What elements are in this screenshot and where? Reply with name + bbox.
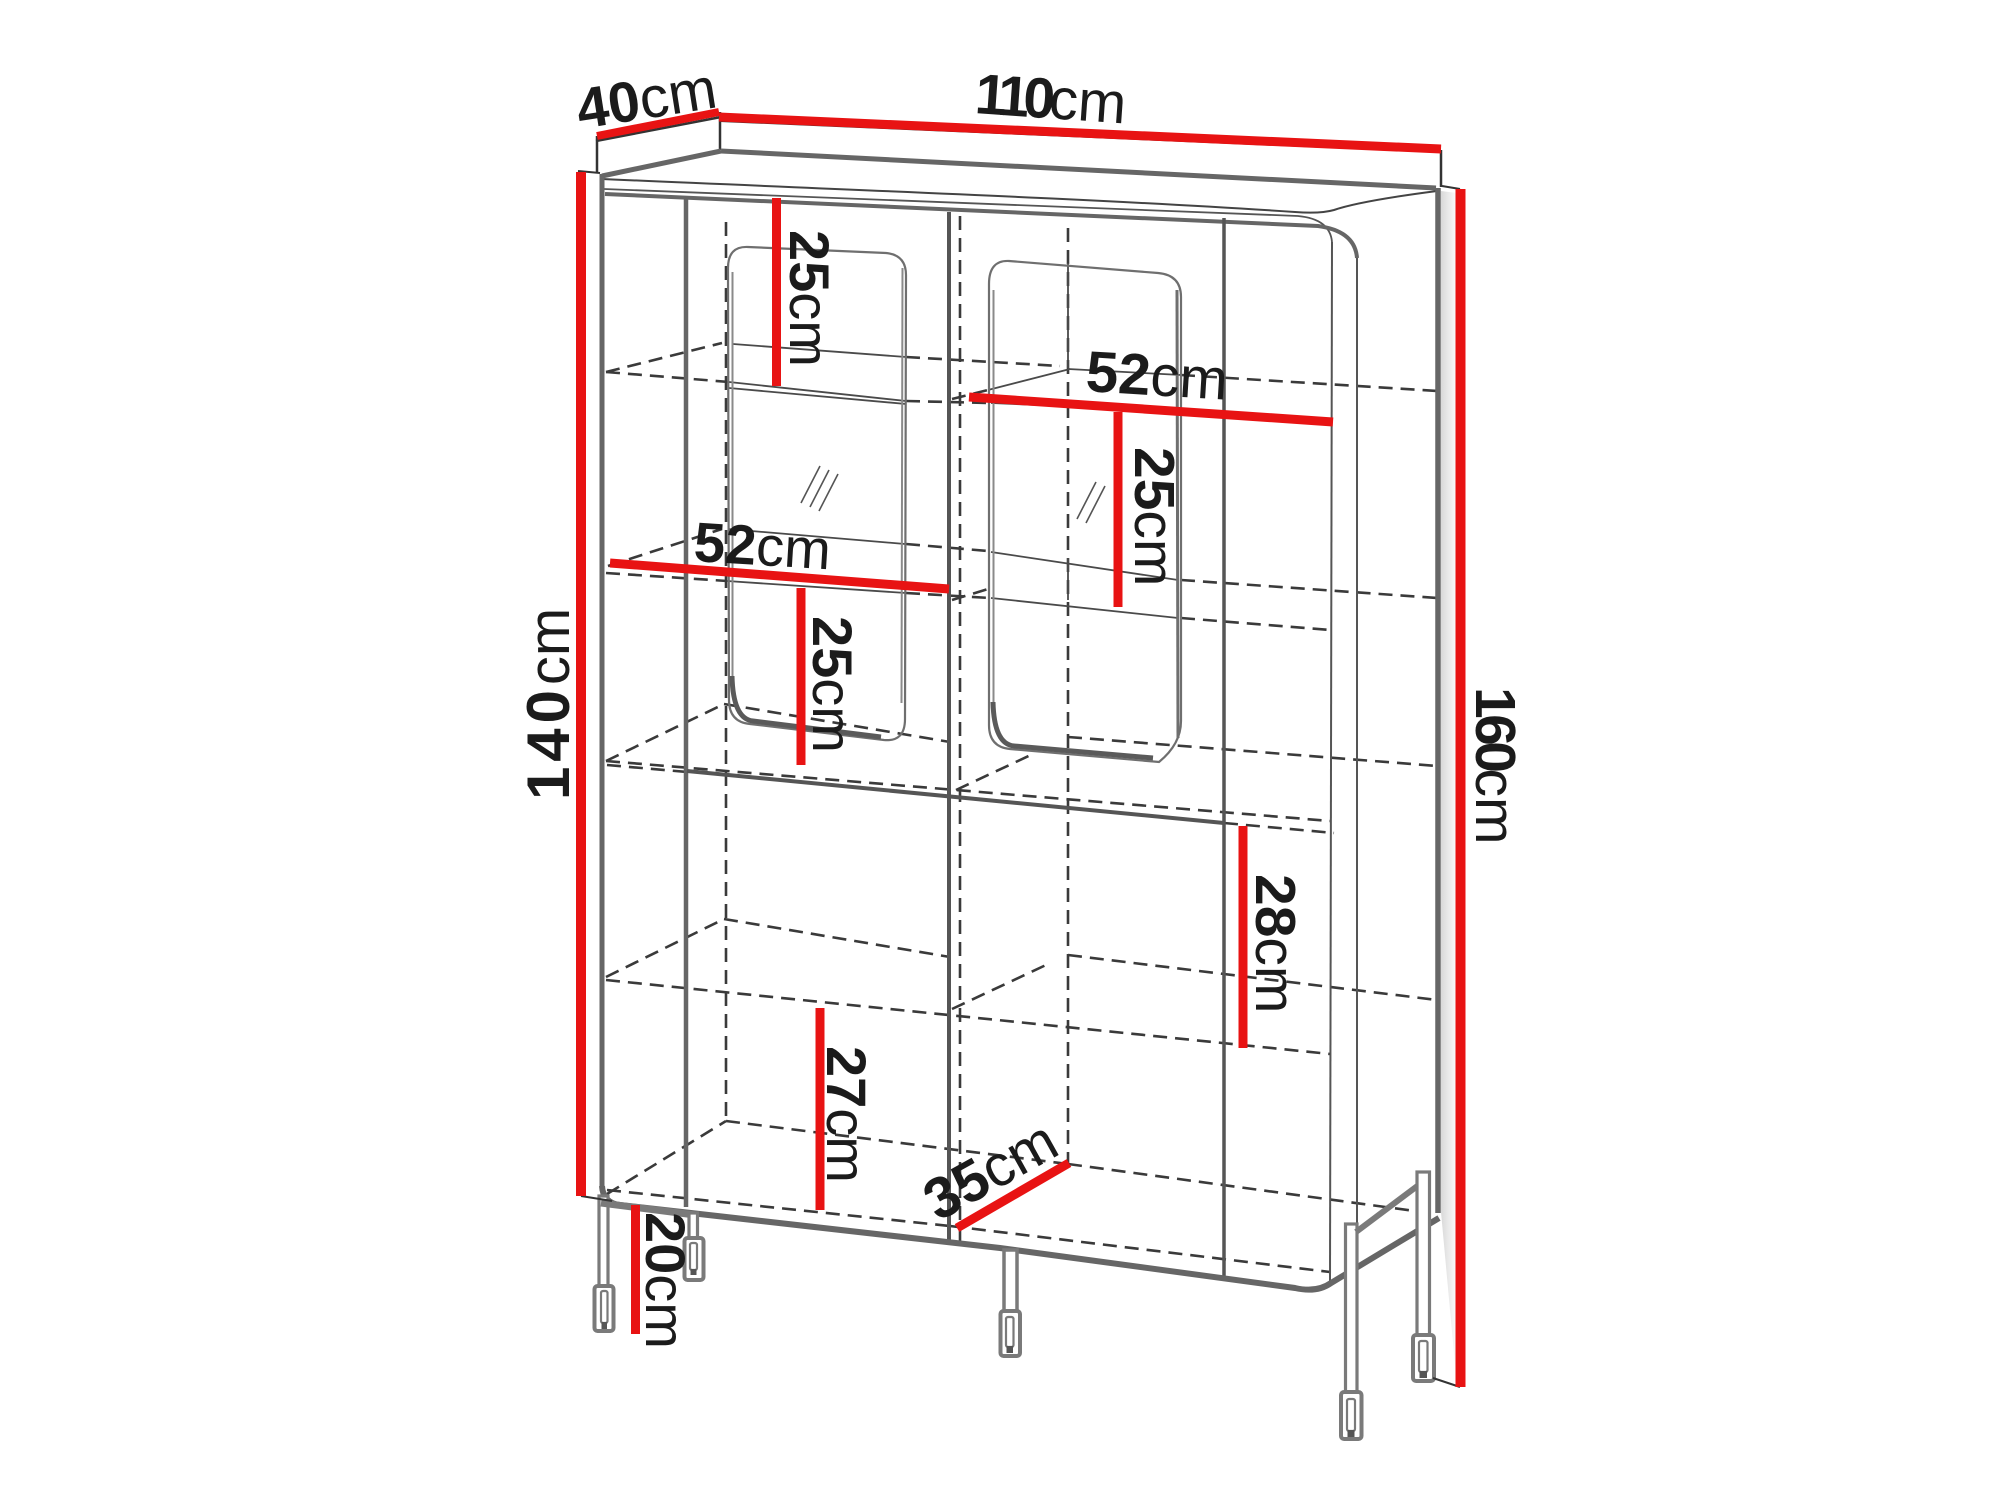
svg-text:110cm: 110cm: [973, 61, 1129, 136]
svg-text:20cm: 20cm: [634, 1212, 697, 1349]
svg-text:27cm: 27cm: [815, 1046, 878, 1183]
svg-text:25cm: 25cm: [778, 230, 841, 367]
svg-text:160cm: 160cm: [1463, 687, 1527, 844]
svg-text:25cm: 25cm: [801, 616, 864, 753]
svg-text:25cm: 25cm: [1122, 447, 1186, 586]
svg-text:52cm: 52cm: [692, 510, 833, 581]
svg-text:52cm: 52cm: [1084, 339, 1230, 413]
svg-text:28cm: 28cm: [1243, 874, 1307, 1013]
svg-text:140cm: 140cm: [515, 608, 582, 800]
